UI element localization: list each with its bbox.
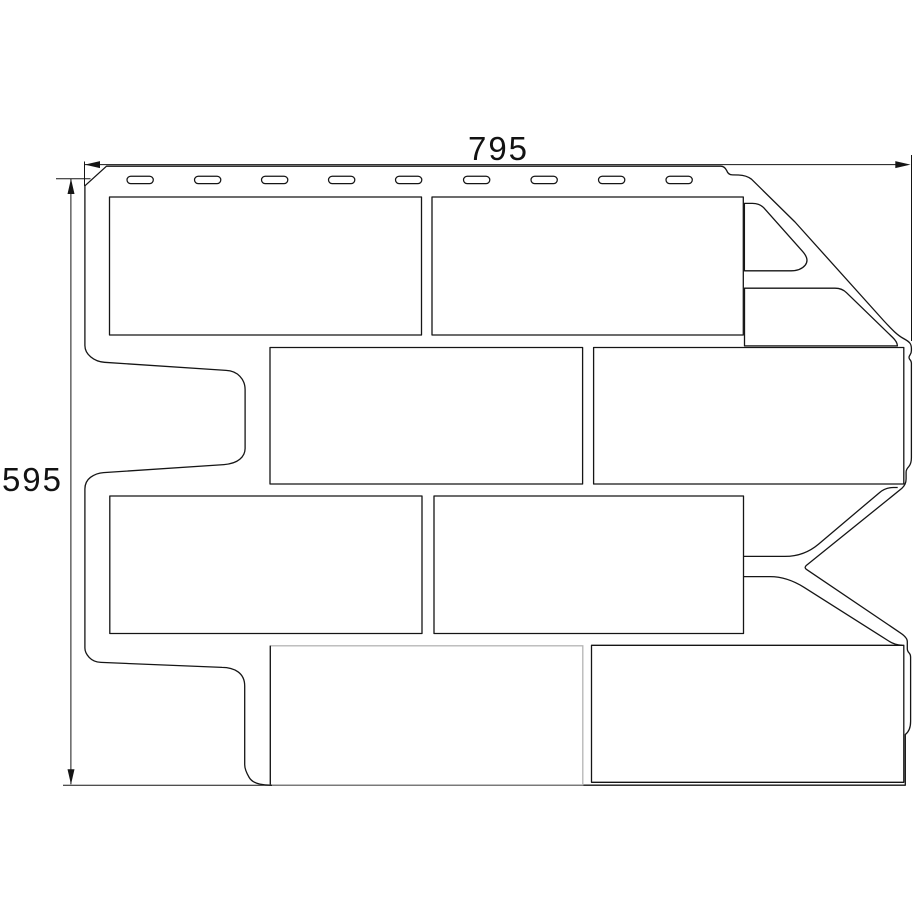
svg-text:795: 795	[468, 130, 529, 167]
svg-text:595: 595	[2, 461, 63, 498]
